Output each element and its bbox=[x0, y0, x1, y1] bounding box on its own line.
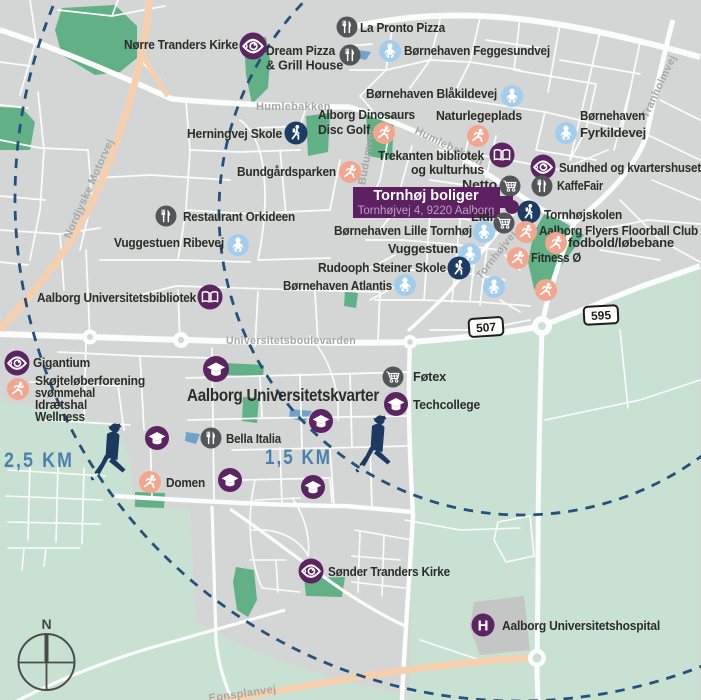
svg-text:N: N bbox=[41, 616, 51, 632]
svg-text:Herningvej Skole: Herningvej Skole bbox=[187, 127, 282, 141]
svg-text:La Pronto Pizza: La Pronto Pizza bbox=[360, 21, 446, 35]
svg-text:1,5 KM: 1,5 KM bbox=[265, 446, 332, 469]
svg-text:Sundhed og kvartershuset: Sundhed og kvartershuset bbox=[559, 161, 701, 175]
svg-text:Naturlegeplads: Naturlegeplads bbox=[436, 109, 522, 123]
svg-text:Tornhøj boliger: Tornhøj boliger bbox=[373, 188, 479, 204]
svg-text:Aalborg Universitetskvarter: Aalborg Universitetskvarter bbox=[187, 385, 379, 405]
svg-text:Børnehaven: Børnehaven bbox=[580, 109, 645, 123]
svg-text:Trekanten bibliotek: Trekanten bibliotek bbox=[378, 149, 484, 163]
svg-text:Nørre Tranders Kirke: Nørre Tranders Kirke bbox=[124, 38, 238, 52]
svg-text:Fyrkildevej: Fyrkildevej bbox=[580, 126, 646, 140]
svg-text:Aalborg Universitetsbibliotek: Aalborg Universitetsbibliotek bbox=[37, 291, 196, 305]
svg-text:Vuggestuen: Vuggestuen bbox=[388, 242, 458, 256]
svg-text:Alborg Dinosaurs: Alborg Dinosaurs bbox=[318, 108, 415, 122]
svg-text:Techcollege: Techcollege bbox=[413, 398, 480, 412]
svg-text:Restaurant Orkideen: Restaurant Orkideen bbox=[183, 210, 295, 224]
svg-text:fodbold/løbebane: fodbold/løbebane bbox=[568, 236, 674, 250]
svg-text:KaffeFair: KaffeFair bbox=[557, 179, 603, 193]
svg-text:Vuggestuen Ribevej: Vuggestuen Ribevej bbox=[114, 236, 224, 250]
svg-text:Fitness Ø: Fitness Ø bbox=[531, 251, 581, 265]
svg-text:Universitetsboulevarden: Universitetsboulevarden bbox=[226, 335, 356, 347]
svg-text:Bundgårdsparken: Bundgårdsparken bbox=[237, 165, 336, 179]
svg-text:Tornhøjskolen: Tornhøjskolen bbox=[544, 208, 622, 222]
svg-text:Rudooph Steiner Skole: Rudooph Steiner Skole bbox=[318, 261, 446, 275]
svg-text:Børnehaven Blåkildevej: Børnehaven Blåkildevej bbox=[366, 87, 497, 101]
svg-text:Sønder Tranders Kirke: Sønder Tranders Kirke bbox=[328, 565, 450, 579]
svg-text:Føtex: Føtex bbox=[413, 370, 446, 384]
svg-text:595: 595 bbox=[591, 308, 612, 323]
svg-text:& Grill House: & Grill House bbox=[266, 59, 343, 73]
svg-text:Domen: Domen bbox=[166, 476, 205, 490]
svg-text:Børnehaven Feggesundvej: Børnehaven Feggesundvej bbox=[404, 44, 550, 58]
svg-text:og kulturhus: og kulturhus bbox=[411, 163, 484, 177]
svg-text:Bella Italia: Bella Italia bbox=[226, 432, 282, 446]
svg-text:Gigantium: Gigantium bbox=[33, 356, 90, 370]
svg-text:Disc Golf: Disc Golf bbox=[318, 123, 371, 137]
svg-text:Børnehaven Lille Tornhøj: Børnehaven Lille Tornhøj bbox=[334, 224, 472, 238]
svg-text:Børnehaven Atlantis: Børnehaven Atlantis bbox=[283, 279, 392, 293]
svg-text:Aalborg Universitetshospital: Aalborg Universitetshospital bbox=[502, 619, 660, 633]
svg-text:H: H bbox=[478, 618, 489, 635]
svg-text:2,5 KM: 2,5 KM bbox=[4, 449, 74, 472]
svg-text:Wellness: Wellness bbox=[35, 410, 85, 424]
svg-text:Dream Pizza: Dream Pizza bbox=[266, 44, 336, 58]
svg-text:507: 507 bbox=[476, 320, 497, 335]
